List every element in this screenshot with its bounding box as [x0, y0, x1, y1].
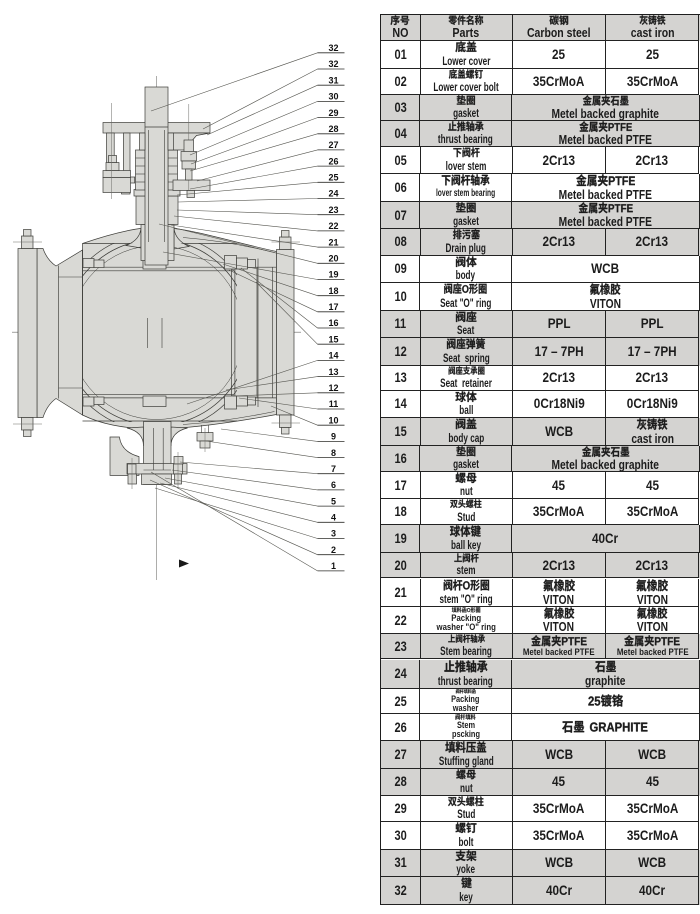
svg-text:31: 31 [328, 75, 338, 85]
svg-text:10: 10 [328, 415, 338, 425]
svg-text:32: 32 [328, 59, 338, 69]
svg-text:20: 20 [328, 254, 338, 264]
svg-text:7: 7 [331, 464, 336, 474]
svg-text:32: 32 [328, 43, 338, 53]
svg-text:29: 29 [328, 108, 338, 118]
svg-text:13: 13 [328, 367, 338, 377]
svg-text:9: 9 [331, 432, 336, 442]
svg-text:30: 30 [328, 92, 338, 102]
svg-text:22: 22 [328, 221, 338, 231]
svg-text:5: 5 [331, 496, 336, 506]
svg-text:15: 15 [328, 334, 338, 344]
svg-text:18: 18 [328, 286, 338, 296]
svg-text:25: 25 [328, 173, 338, 183]
svg-text:11: 11 [329, 399, 339, 409]
svg-text:24: 24 [328, 189, 338, 199]
svg-text:4: 4 [331, 513, 336, 523]
svg-text:3: 3 [331, 529, 336, 539]
svg-text:17: 17 [328, 302, 338, 312]
svg-text:26: 26 [328, 156, 338, 166]
svg-text:12: 12 [328, 383, 338, 393]
svg-text:21: 21 [328, 237, 338, 247]
svg-text:19: 19 [328, 270, 338, 280]
svg-text:1: 1 [331, 561, 336, 571]
svg-text:16: 16 [328, 318, 338, 328]
svg-text:14: 14 [328, 351, 338, 361]
svg-text:2: 2 [331, 545, 336, 555]
svg-text:28: 28 [328, 124, 338, 134]
svg-text:6: 6 [331, 480, 336, 490]
svg-text:8: 8 [331, 448, 336, 458]
svg-text:23: 23 [328, 205, 338, 215]
svg-text:27: 27 [328, 140, 338, 150]
